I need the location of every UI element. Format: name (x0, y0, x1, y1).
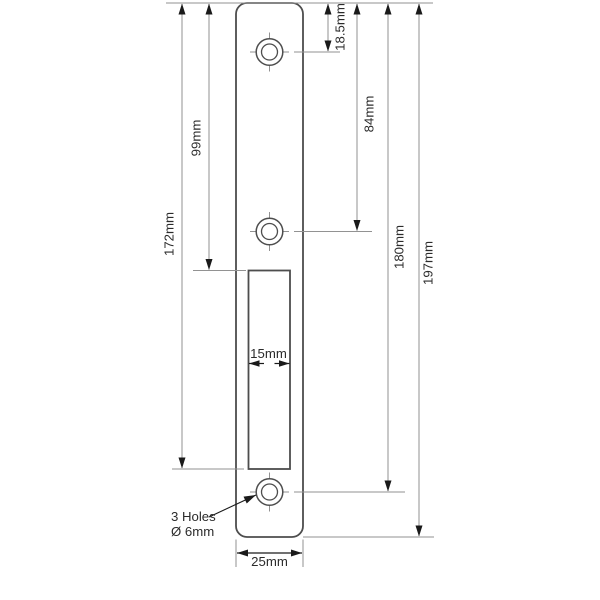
dim-172mm-label: 172mm (162, 212, 177, 256)
dim-172mm-arrow-top (179, 4, 186, 15)
note-hole-diameter: Ø 6mm (171, 524, 214, 539)
dim-197mm-arrow-top (416, 4, 423, 15)
drawing-canvas: 172mm99mm18.5mm84mm180mm197mm25mm15mm3 H… (0, 0, 600, 600)
dim-99mm-arrow-bottom (206, 259, 213, 270)
dim-18p5mm-label: 18.5mm (333, 3, 348, 51)
strike-plate-technical-drawing: 172mm99mm18.5mm84mm180mm197mm25mm15mm3 H… (0, 0, 600, 600)
latch-cutout (249, 271, 291, 470)
dim-180mm-arrow-bottom (385, 481, 392, 492)
dim-25mm-arrow-right (291, 550, 302, 557)
dim-197mm-label: 197mm (421, 241, 436, 285)
dim-197mm-arrow-bottom (416, 526, 423, 537)
dim-84mm-arrow-top (354, 4, 361, 15)
hole-top-bore (262, 44, 278, 60)
dim-172mm-arrow-bottom (179, 458, 186, 469)
dim-25mm-arrow-left (237, 550, 248, 557)
dim-180mm-arrow-top (385, 4, 392, 15)
dim-99mm-label: 99mm (189, 120, 204, 157)
hole-middle-bore (262, 224, 278, 240)
dim-15mm-label: 15mm (250, 346, 287, 361)
hole-bottom-bore (262, 484, 278, 500)
dim-18p5mm-arrow-top (325, 4, 332, 15)
dim-18p5mm-arrow-bottom (325, 41, 332, 52)
dim-99mm-arrow-top (206, 4, 213, 15)
dim-25mm-label: 25mm (251, 554, 288, 569)
dim-84mm-label: 84mm (362, 96, 377, 133)
note-3-holes: 3 Holes (171, 509, 216, 524)
dim-84mm-arrow-bottom (354, 220, 361, 231)
dim-180mm-label: 180mm (392, 225, 407, 269)
